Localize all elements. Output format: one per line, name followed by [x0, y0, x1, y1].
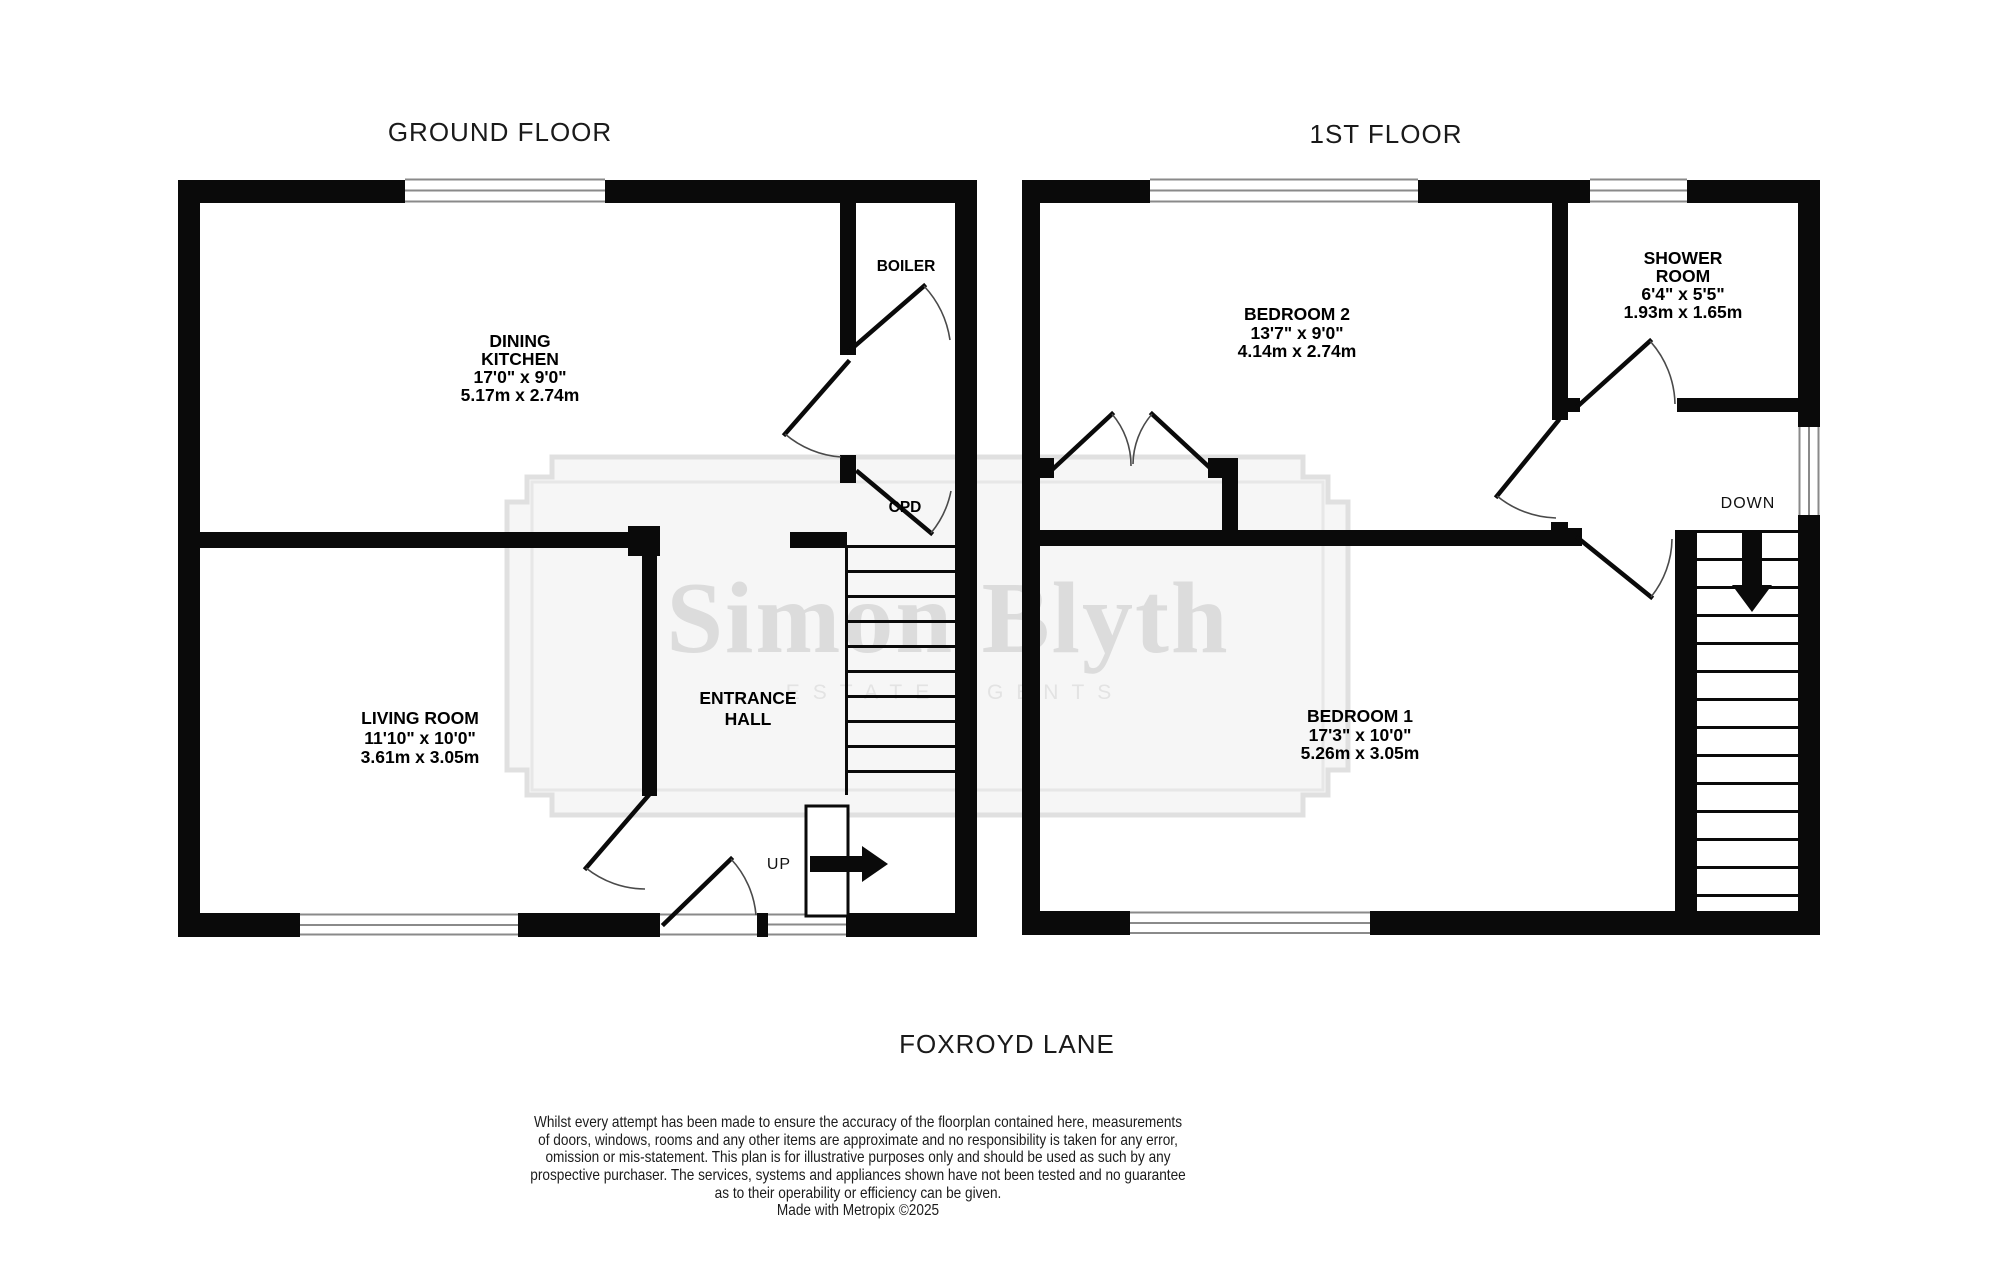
bedroom-1-dims-m: 5.26m x 3.05m: [1301, 743, 1420, 763]
address-label: FOXROYD LANE: [899, 1029, 1115, 1059]
window-landing: [1798, 427, 1820, 515]
disclaimer-line: of doors, windows, rooms and any other i…: [538, 1132, 1178, 1149]
shower-room-label-2: ROOM: [1656, 266, 1710, 286]
bedroom-2-dims-m: 4.14m x 2.74m: [1238, 341, 1357, 361]
cupboard-label: CPD: [889, 499, 922, 516]
disclaimer-line: omission or mis-statement. This plan is …: [545, 1149, 1171, 1166]
disclaimer-line: Whilst every attempt has been made to en…: [534, 1114, 1182, 1131]
entrance-hall-label: ENTRANCE: [699, 688, 796, 708]
dining-kitchen-dims-m: 5.17m x 2.74m: [461, 385, 580, 405]
window-bedroom-1: [1130, 911, 1370, 935]
bedroom-2-label: BEDROOM 2: [1244, 304, 1350, 324]
bedroom-1-label: BEDROOM 1: [1307, 706, 1413, 726]
shower-room-dims-m: 1.93m x 1.65m: [1624, 302, 1743, 322]
bedroom-1-dims-ft: 17'3" x 10'0": [1309, 725, 1412, 745]
disclaimer-credit: Made with Metropix ©2025: [777, 1202, 939, 1219]
entrance-hall-label-2: HALL: [725, 709, 772, 729]
disclaimer-line: as to their operability or efficiency ca…: [715, 1185, 1002, 1202]
living-room-dims-ft: 11'10" x 10'0": [364, 728, 476, 748]
bedroom-2-dims-ft: 13'7" x 9'0": [1250, 323, 1343, 343]
shower-room-dims-ft: 6'4" x 5'5": [1641, 284, 1724, 304]
down-label: DOWN: [1721, 495, 1776, 512]
boiler-label: BOILER: [877, 258, 936, 275]
dining-kitchen-dims-ft: 17'0" x 9'0": [473, 367, 566, 387]
first-floor-title: 1ST FLOOR: [1309, 119, 1462, 149]
ground-floor-title: GROUND FLOOR: [388, 117, 612, 147]
watermark-brand: Simon Blyth: [666, 562, 1229, 675]
floorplan-canvas: Simon Blyth ESTATE AGENTS GROUND FLOOR: [0, 0, 2000, 1281]
disclaimer-line: prospective purchaser. The services, sys…: [530, 1167, 1185, 1184]
up-label: UP: [767, 856, 791, 873]
watermark: Simon Blyth ESTATE AGENTS: [507, 457, 1348, 815]
living-room-dims-m: 3.61m x 3.05m: [361, 747, 480, 767]
dining-kitchen-label: DINING: [489, 331, 550, 351]
window-dining-kitchen: [405, 178, 605, 203]
dining-kitchen-label-2: KITCHEN: [481, 349, 559, 369]
floorplan-page: Simon Blyth ESTATE AGENTS GROUND FLOOR: [0, 0, 2000, 1281]
shower-room-label: SHOWER: [1644, 248, 1723, 268]
window-shower-room: [1590, 178, 1687, 203]
window-bedroom-2: [1150, 178, 1418, 203]
living-room-label: LIVING ROOM: [361, 708, 479, 728]
window-living-room: [300, 913, 518, 937]
